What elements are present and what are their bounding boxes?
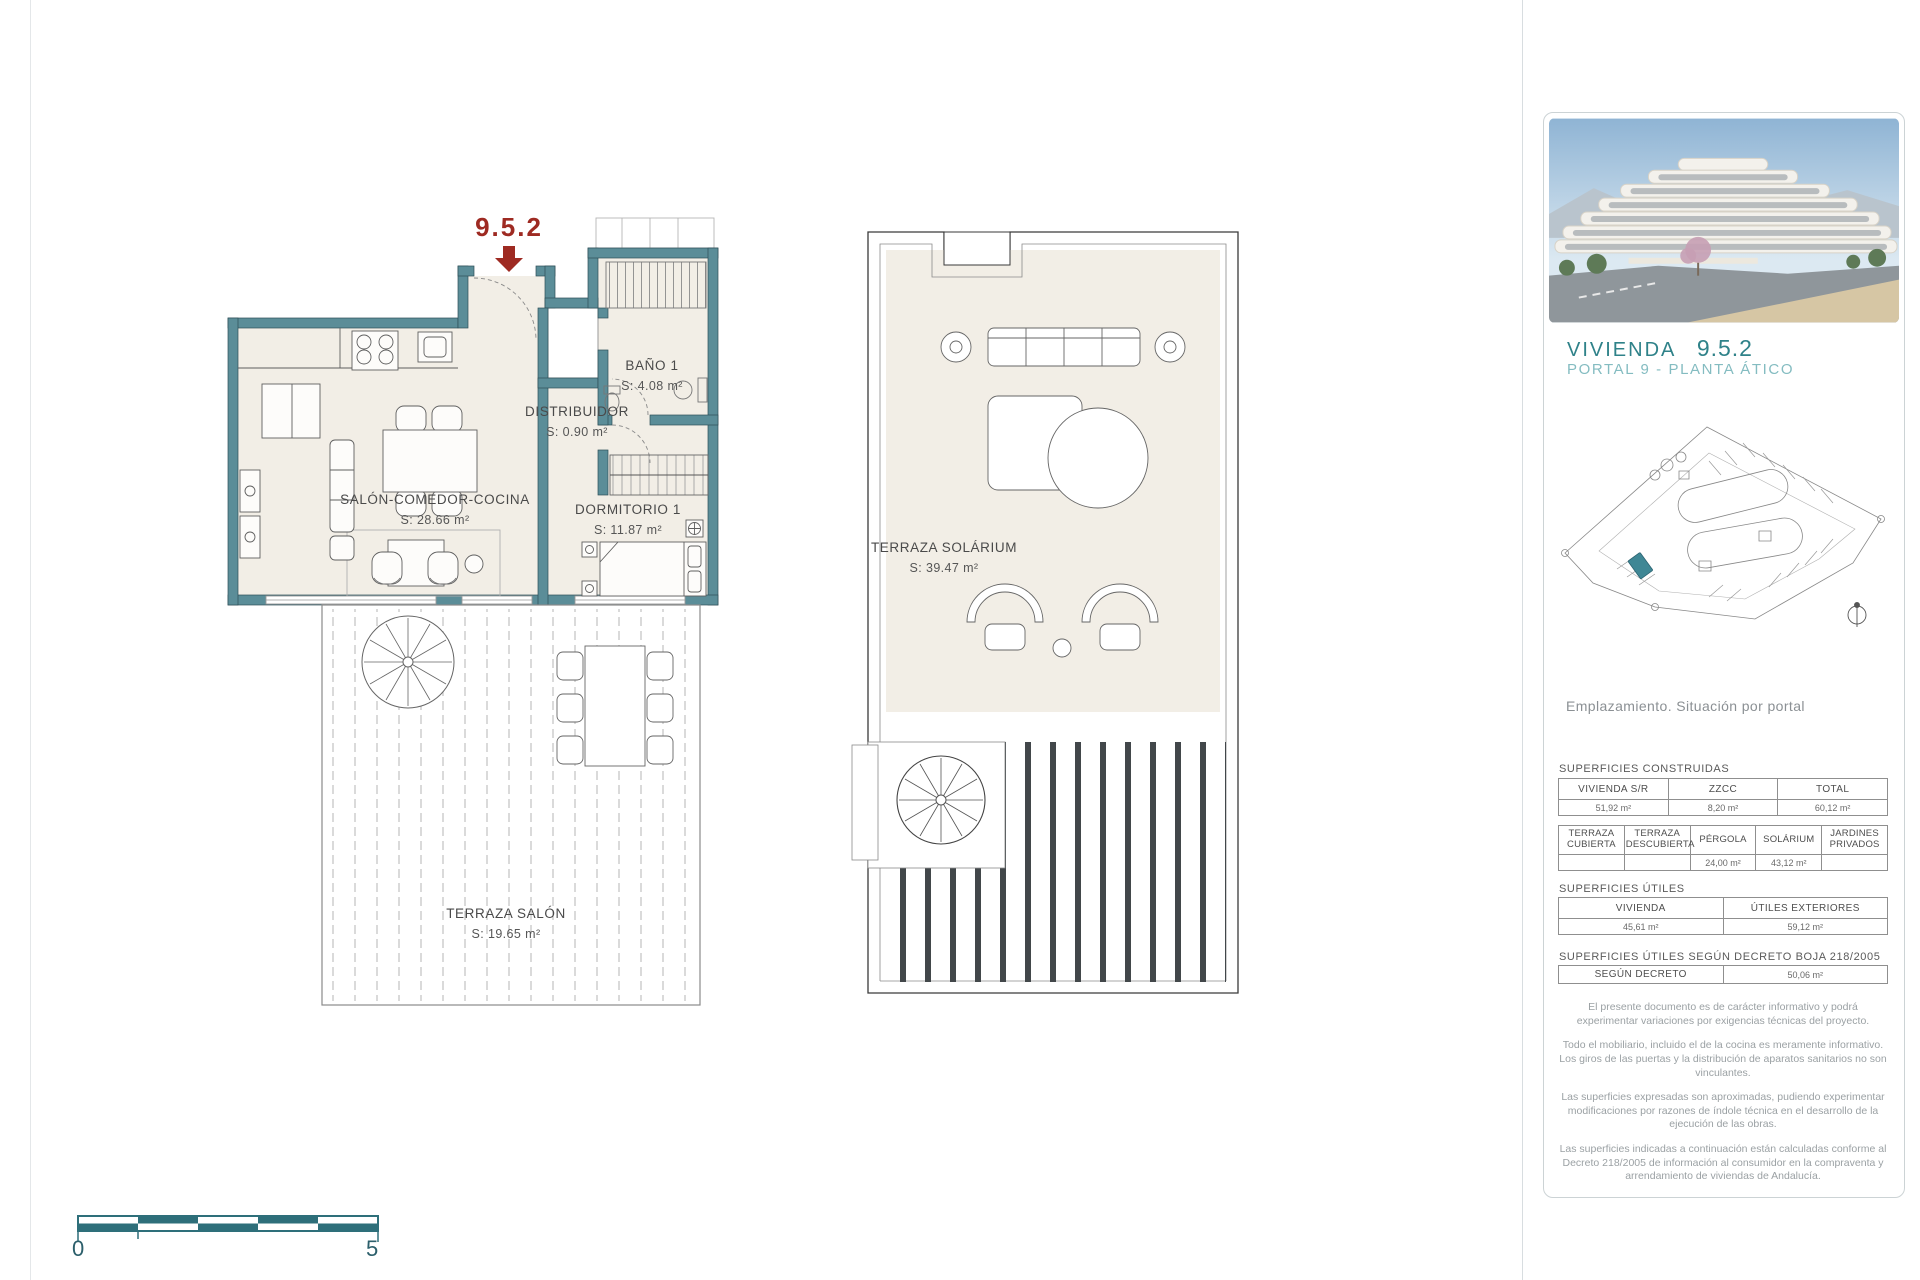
terrace-salon xyxy=(322,605,700,1005)
unit-subtitle: PORTAL 9 - PLANTA ÁTICO xyxy=(1567,361,1794,378)
heading-construidas: SUPERFICIES CONSTRUIDAS xyxy=(1559,763,1729,775)
heading-decreto: SUPERFICIES ÚTILES SEGÚN DECRETO BOJA 21… xyxy=(1559,951,1880,963)
cell-value: 8,20 m² xyxy=(1668,800,1778,816)
col-header: VIVIENDA xyxy=(1559,898,1724,919)
highlighted-unit xyxy=(1628,552,1653,579)
heading-utiles: SUPERFICIES ÚTILES xyxy=(1559,883,1685,895)
disclaimer-paragraph: Las superficies indicadas a continuación… xyxy=(1558,1143,1888,1184)
terrace-table-set xyxy=(557,646,673,766)
scale-end-label: 5 xyxy=(366,1236,378,1262)
unit-title-word: VIVIENDA xyxy=(1567,339,1676,362)
disclaimer-block: El presente documento es de carácter inf… xyxy=(1558,1001,1888,1195)
cell-value: 60,12 m² xyxy=(1778,800,1888,816)
site-plan xyxy=(1558,401,1890,651)
upper-volume-outline xyxy=(596,218,714,248)
room-label-bano: BAÑO 1 S: 4.08 m² xyxy=(621,358,683,393)
col-header: TOTAL xyxy=(1778,779,1888,800)
col-header: TERRAZA CUBIERTA xyxy=(1559,826,1625,855)
disclaimer-paragraph: Todo el mobiliario, incluido el de la co… xyxy=(1558,1039,1888,1080)
cell-value: 59,12 m² xyxy=(1723,919,1888,935)
cell-value xyxy=(1822,855,1888,871)
table-construidas: VIVIENDA S/R ZZCC TOTAL 51,92 m² 8,20 m²… xyxy=(1558,778,1888,816)
table-exteriores: TERRAZA CUBIERTA TERRAZA DESCUBIERTA PÉR… xyxy=(1558,825,1888,871)
building-photo xyxy=(1549,118,1899,323)
col-header: SOLÁRIUM xyxy=(1756,826,1822,855)
disclaimer-paragraph: Las superficies expresadas son aproximad… xyxy=(1558,1091,1888,1132)
cell-value: 51,92 m² xyxy=(1559,800,1669,816)
scale-bar xyxy=(78,1216,378,1242)
room-label-dormitorio: DORMITORIO 1 S: 11.87 m² xyxy=(575,502,681,537)
room-label-salon: SALÓN-COMEDOR-COCINA S: 28.66 m² xyxy=(340,492,530,527)
sidebar-panel: VIVIENDA 9.5.2 PORTAL 9 - PLANTA ÁTICO xyxy=(1543,112,1905,1198)
cell-value xyxy=(1559,855,1625,871)
cell-value: 24,00 m² xyxy=(1690,855,1756,871)
siteplan-caption: Emplazamiento. Situación por portal xyxy=(1566,698,1805,714)
table-utiles: VIVIENDA ÚTILES EXTERIORES 45,61 m² 59,1… xyxy=(1558,897,1888,935)
room-label-terraza-salon: TERRAZA SALÓN S: 19.65 m² xyxy=(446,906,566,941)
col-header: TERRAZA DESCUBIERTA xyxy=(1624,826,1690,855)
disclaimer-paragraph: El presente documento es de carácter inf… xyxy=(1558,1001,1888,1028)
room-label-distribuidor: DISTRIBUIDOR S: 0.90 m² xyxy=(525,404,629,439)
unit-callout: 9.5.2 xyxy=(475,212,543,243)
windows xyxy=(266,596,685,604)
col-header: JARDINES PRIVADOS xyxy=(1822,826,1888,855)
cell-value xyxy=(1624,855,1690,871)
cell-value: 43,12 m² xyxy=(1756,855,1822,871)
pergola xyxy=(852,742,1226,982)
cell-value: 50,06 m² xyxy=(1723,966,1888,984)
drawing-sheet: 9.5.2 SALÓN-COMEDOR-COCINA S: 28.66 m² D… xyxy=(0,0,1920,1280)
north-compass-icon xyxy=(1848,603,1866,628)
col-header: SEGÚN DECRETO xyxy=(1559,966,1724,984)
cell-value: 45,61 m² xyxy=(1559,919,1724,935)
col-header: VIVIENDA S/R xyxy=(1559,779,1669,800)
unit-title: VIVIENDA 9.5.2 xyxy=(1567,335,1753,362)
col-header: PÉRGOLA xyxy=(1690,826,1756,855)
scale-start-label: 0 xyxy=(72,1236,84,1262)
solarium-plan xyxy=(852,232,1238,993)
col-header: ÚTILES EXTERIORES xyxy=(1723,898,1888,919)
table-decreto: SEGÚN DECRETO 50,06 m² xyxy=(1558,965,1888,984)
unit-title-number: 9.5.2 xyxy=(1697,335,1753,362)
col-header: ZZCC xyxy=(1668,779,1778,800)
room-label-terraza-solarium: TERRAZA SOLÁRIUM S: 39.47 m² xyxy=(871,540,1017,575)
entrance-arrow-icon xyxy=(495,246,523,272)
apartment-plan xyxy=(228,218,718,1005)
